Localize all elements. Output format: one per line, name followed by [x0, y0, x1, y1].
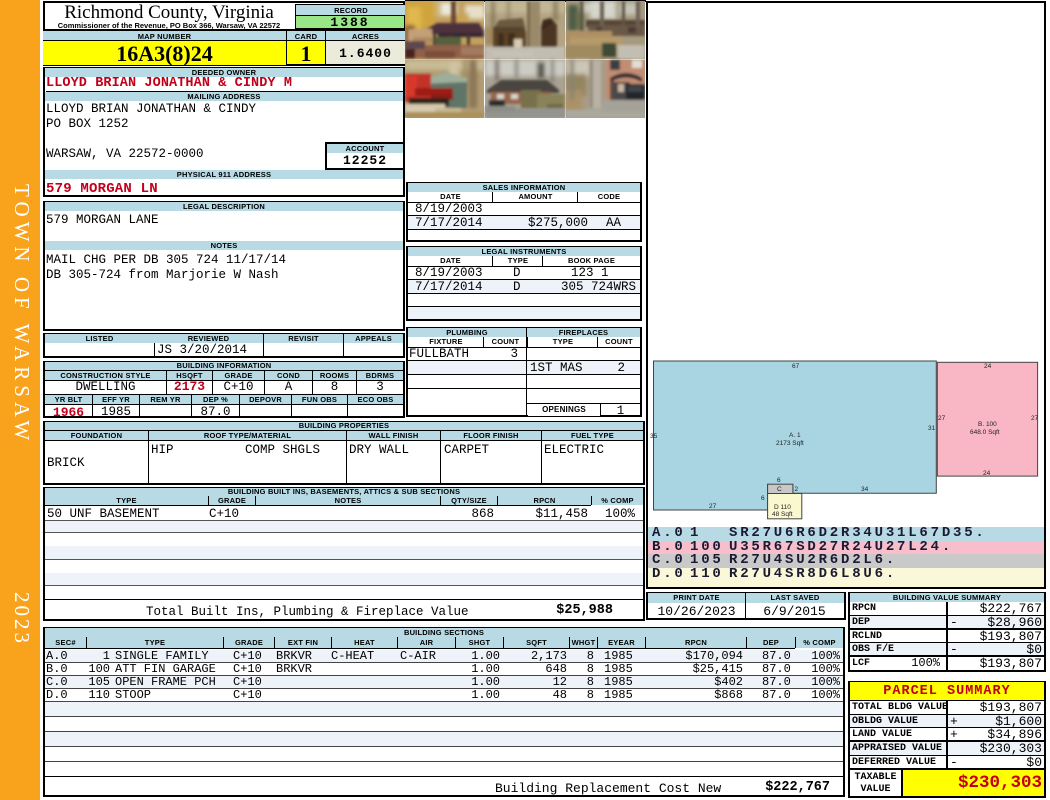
svg-text:2173 Sqft: 2173 Sqft [776, 440, 804, 447]
svg-text:24: 24 [983, 470, 991, 477]
svg-text:D 110: D 110 [774, 504, 791, 511]
svg-text:C: C [777, 486, 782, 493]
svg-text:27: 27 [709, 503, 717, 510]
svg-text:27: 27 [1031, 415, 1039, 422]
svg-text:35: 35 [650, 433, 658, 440]
svg-text:31: 31 [928, 425, 936, 432]
svg-text:6: 6 [777, 477, 781, 484]
svg-text:48 Sqft: 48 Sqft [772, 511, 793, 518]
svg-text:A. 1: A. 1 [789, 432, 801, 439]
svg-text:24: 24 [984, 363, 992, 370]
svg-text:2: 2 [795, 486, 799, 493]
svg-text:648.0 Sqft: 648.0 Sqft [970, 429, 1000, 436]
svg-text:6: 6 [761, 495, 765, 502]
svg-text:B. 100: B. 100 [978, 421, 997, 428]
svg-text:27: 27 [938, 415, 946, 422]
svg-text:67: 67 [792, 363, 800, 370]
svg-text:34: 34 [861, 486, 869, 493]
